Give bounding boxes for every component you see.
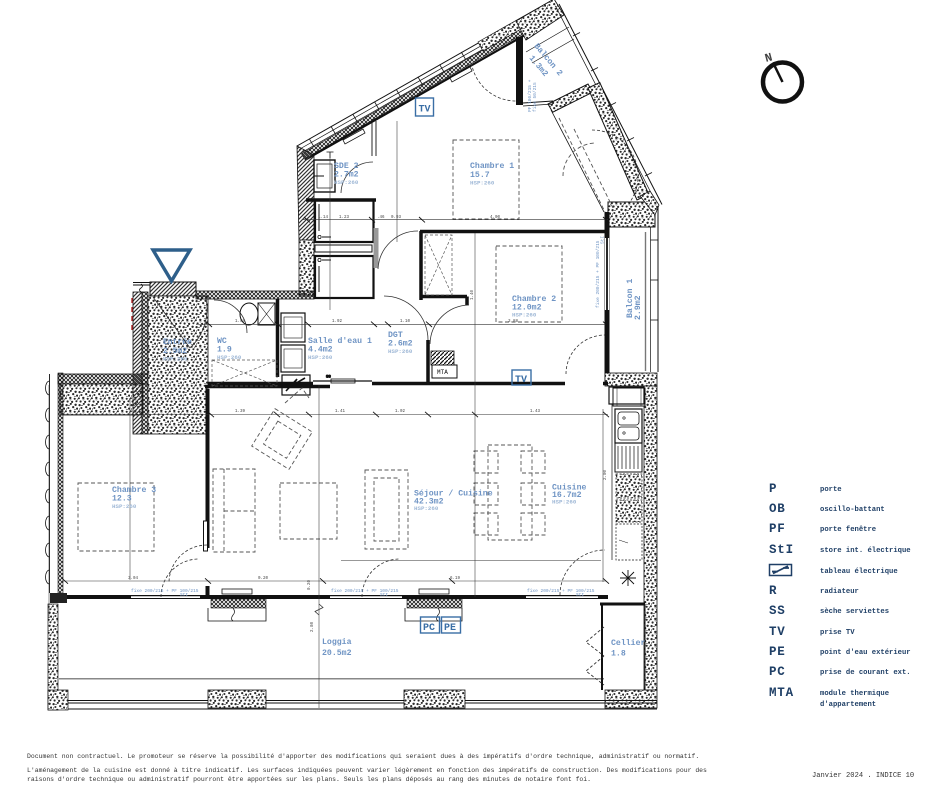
svg-text:PC: PC bbox=[423, 623, 435, 634]
svg-text:PE: PE bbox=[444, 623, 456, 634]
svg-text:.46: .46 bbox=[377, 216, 385, 220]
svg-text:1.8: 1.8 bbox=[611, 650, 626, 659]
svg-text:tableau électrique: tableau électrique bbox=[820, 568, 898, 576]
svg-text:Janvier 2024 . INDICE 10: Janvier 2024 . INDICE 10 bbox=[812, 772, 914, 780]
svg-text:radiateur: radiateur bbox=[820, 588, 859, 596]
svg-text:SS: SS bbox=[326, 376, 331, 380]
svg-text:d'appartement: d'appartement bbox=[820, 701, 876, 709]
svg-text:HSP:260: HSP:260 bbox=[414, 505, 439, 512]
svg-text:6.19: 6.19 bbox=[450, 577, 461, 581]
svg-text:1.92: 1.92 bbox=[332, 320, 343, 324]
svg-text:MTA: MTA bbox=[769, 686, 794, 700]
svg-text:fixe 200/215 + PF 100/215: fixe 200/215 + PF 100/215 bbox=[595, 240, 601, 308]
svg-text:TV: TV bbox=[769, 625, 786, 639]
svg-text:P: P bbox=[769, 482, 777, 496]
svg-text:fixe 200/215 + PF 100/215: fixe 200/215 + PF 100/215 bbox=[131, 588, 199, 594]
svg-text:HSP:260: HSP:260 bbox=[217, 354, 242, 361]
svg-text:raisons d'ordre technique ou a: raisons d'ordre technique ou administrat… bbox=[27, 776, 591, 783]
svg-text:0.20: 0.20 bbox=[308, 579, 312, 590]
svg-text:3.04: 3.04 bbox=[128, 577, 139, 581]
svg-text:1.10: 1.10 bbox=[400, 320, 411, 324]
svg-text:2.9m2: 2.9m2 bbox=[634, 295, 643, 320]
svg-text:4.00: 4.00 bbox=[490, 216, 501, 220]
svg-text:R: R bbox=[769, 584, 777, 598]
svg-text:StI: StI bbox=[380, 592, 388, 598]
svg-text:Salle d'eau 1: Salle d'eau 1 bbox=[308, 336, 372, 346]
svg-text:prise TV: prise TV bbox=[820, 629, 855, 637]
svg-text:StI: StI bbox=[180, 592, 188, 598]
svg-text:porte fenêtre: porte fenêtre bbox=[820, 526, 876, 534]
svg-text:Document non contractuel. Le p: Document non contractuel. Le promoteur s… bbox=[27, 753, 699, 760]
svg-text:1.39: 1.39 bbox=[235, 410, 246, 414]
svg-text:Entrée: Entrée bbox=[163, 338, 192, 347]
svg-text:1.43: 1.43 bbox=[530, 410, 541, 414]
svg-text:Chambre 1: Chambre 1 bbox=[470, 161, 514, 171]
svg-text:MTA: MTA bbox=[437, 369, 448, 376]
svg-text:PC: PC bbox=[769, 665, 786, 679]
svg-text:HSP:260: HSP:260 bbox=[388, 348, 413, 355]
svg-text:StI: StI bbox=[576, 592, 584, 598]
svg-text:PE: PE bbox=[769, 645, 786, 659]
svg-text:HSP:260: HSP:260 bbox=[512, 312, 537, 319]
svg-text:1.41: 1.41 bbox=[335, 410, 346, 414]
svg-text:1.40: 1.40 bbox=[471, 289, 475, 300]
svg-text:HSP:260: HSP:260 bbox=[163, 356, 188, 363]
svg-text:oscillo-battant: oscillo-battant bbox=[820, 506, 885, 514]
svg-text:1.99: 1.99 bbox=[235, 320, 246, 324]
svg-text:Loggia: Loggia bbox=[322, 637, 352, 647]
svg-text:StI: StI bbox=[600, 236, 606, 244]
svg-text:fixe 200/215 + PF 100/215: fixe 200/215 + PF 100/215 bbox=[527, 588, 595, 594]
svg-text:0.93: 0.93 bbox=[391, 216, 402, 220]
svg-text:HSP:260: HSP:260 bbox=[470, 180, 495, 187]
svg-text:HSP:260: HSP:260 bbox=[334, 179, 359, 186]
svg-text:3.88: 3.88 bbox=[508, 320, 519, 324]
svg-text:TV: TV bbox=[515, 375, 527, 386]
svg-text:HSP:260: HSP:260 bbox=[552, 499, 577, 506]
svg-text:Chambre 2: Chambre 2 bbox=[512, 294, 556, 304]
svg-text:fixe 200/215 + PF 100/215: fixe 200/215 + PF 100/215 bbox=[331, 588, 399, 594]
svg-text:1.23: 1.23 bbox=[339, 216, 350, 220]
svg-text:2.08: 2.08 bbox=[311, 621, 315, 632]
svg-text:TV: TV bbox=[419, 105, 431, 116]
svg-text:fixe 50/215: fixe 50/215 bbox=[532, 82, 538, 112]
svg-text:0.20: 0.20 bbox=[258, 577, 269, 581]
svg-text:module thermique: module thermique bbox=[820, 690, 889, 698]
svg-text:HSP:260: HSP:260 bbox=[112, 503, 137, 510]
svg-text:store int. électrique: store int. électrique bbox=[820, 547, 911, 555]
svg-text:porte: porte bbox=[820, 486, 842, 494]
svg-text:SS: SS bbox=[769, 604, 786, 618]
svg-text:2.00: 2.00 bbox=[604, 469, 608, 480]
svg-text:Cellier: Cellier bbox=[611, 638, 645, 648]
svg-text:1.02: 1.02 bbox=[395, 410, 406, 414]
svg-text:prise de courant ext.: prise de courant ext. bbox=[820, 669, 911, 677]
svg-text:HSP:260: HSP:260 bbox=[308, 354, 333, 361]
svg-text:sèche serviettes: sèche serviettes bbox=[820, 608, 889, 616]
svg-text:point d'eau extérieur: point d'eau extérieur bbox=[820, 649, 911, 657]
svg-text:StI: StI bbox=[769, 543, 794, 557]
svg-text:Chambre 3: Chambre 3 bbox=[112, 485, 156, 495]
svg-text:PF: PF bbox=[769, 522, 786, 536]
svg-text:OB: OB bbox=[769, 502, 786, 516]
svg-text:1.14: 1.14 bbox=[318, 216, 329, 220]
svg-text:L'aménagement de la cuisine es: L'aménagement de la cuisine est donné à … bbox=[27, 767, 707, 774]
svg-text:20.5m2: 20.5m2 bbox=[322, 649, 352, 658]
